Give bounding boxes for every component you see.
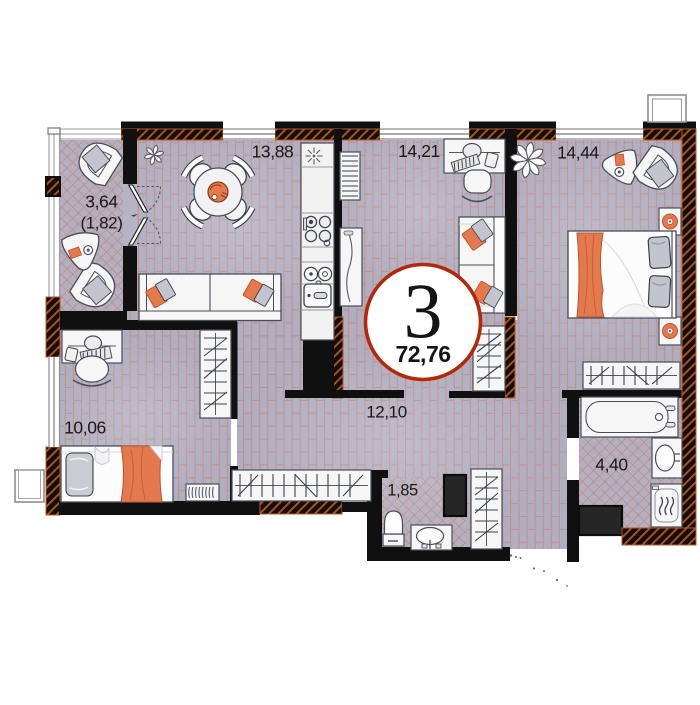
- svg-text:1,85: 1,85: [387, 482, 418, 500]
- svg-text:(1,82): (1,82): [80, 214, 122, 233]
- svg-text:3,64: 3,64: [85, 192, 118, 212]
- svg-text:13,88: 13,88: [252, 142, 294, 162]
- svg-text:12,10: 12,10: [366, 403, 407, 422]
- svg-text:10,06: 10,06: [64, 418, 106, 438]
- svg-text:14,44: 14,44: [557, 143, 599, 163]
- svg-text:72,76: 72,76: [395, 341, 450, 367]
- svg-text:14,21: 14,21: [398, 141, 440, 161]
- svg-text:4,40: 4,40: [595, 455, 628, 475]
